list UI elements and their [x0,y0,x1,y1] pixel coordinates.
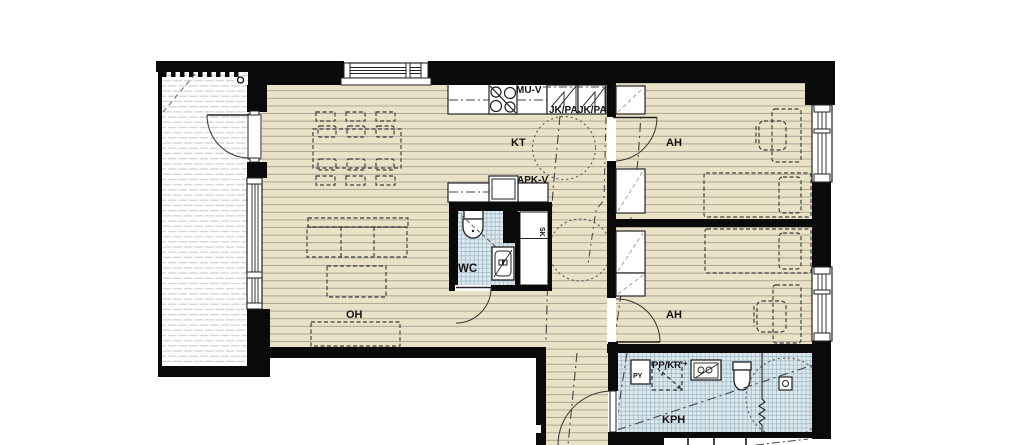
svg-text:JK/PA: JK/PA [578,105,607,116]
svg-text:JK/PA: JK/PA [549,105,578,116]
svg-text:AH: AH [666,309,682,321]
svg-text:+: + [683,359,688,368]
svg-text:SK: SK [538,227,545,237]
svg-text:PY: PY [633,373,643,380]
svg-text:APK-V: APK-V [517,175,548,186]
svg-text:OH: OH [346,309,363,321]
svg-text:KPH: KPH [662,414,685,426]
svg-text:MU-V: MU-V [516,85,542,96]
svg-text:AH: AH [666,137,682,149]
svg-text:WC: WC [458,263,477,275]
svg-text:KT: KT [511,137,526,149]
svg-text:PP/KR: PP/KR [652,360,681,371]
